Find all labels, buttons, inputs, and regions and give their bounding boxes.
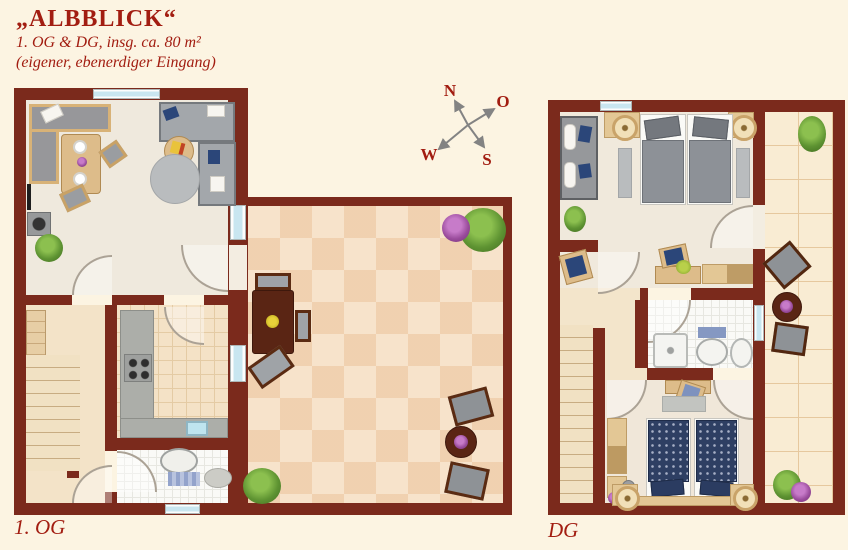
- corner-bench: [29, 104, 111, 132]
- pillow: [699, 480, 733, 498]
- table-flowers: [780, 300, 793, 313]
- washbasin: [160, 448, 198, 474]
- wardrobe-contents: [578, 163, 592, 179]
- bed-cover: [642, 140, 684, 203]
- staircase: [560, 325, 593, 503]
- pillow: [692, 116, 729, 140]
- living-terrace-window: [230, 205, 246, 240]
- wc-window: [165, 504, 200, 514]
- lamp: [731, 115, 757, 141]
- sideboard: [702, 264, 753, 284]
- lamp: [733, 486, 758, 511]
- wall: [691, 288, 753, 300]
- page-note: (eigener, ebenerdiger Eingang): [16, 54, 216, 72]
- toilet: [730, 338, 753, 368]
- bath-mat: [698, 327, 726, 338]
- rug: [662, 396, 706, 412]
- bedside-rug: [736, 148, 750, 198]
- table-flowers: [454, 435, 468, 449]
- wall: [14, 88, 26, 515]
- bed-cover: [648, 420, 689, 482]
- table-flowers: [266, 315, 279, 328]
- wall: [640, 288, 648, 300]
- radiator: [27, 184, 31, 210]
- wall: [503, 197, 512, 503]
- desk-plant: [676, 260, 691, 274]
- table-flowers: [77, 157, 87, 167]
- terrace-chair: [295, 310, 311, 342]
- page-subtitle: 1. OG & DG, insg. ca. 80 m²: [16, 34, 201, 52]
- wardrobe-contents: [564, 162, 576, 188]
- pillow: [650, 479, 684, 498]
- flowering-plant: [442, 214, 470, 242]
- bathroom-window: [754, 305, 764, 341]
- wall: [833, 100, 845, 515]
- terrace-chair: [255, 273, 291, 290]
- terrace-door-opening: [229, 245, 247, 290]
- lamp: [615, 486, 640, 511]
- cooktop: [124, 354, 152, 382]
- round-rug: [150, 154, 200, 204]
- flowering-plant: [791, 482, 811, 502]
- living-room-window: [93, 89, 160, 99]
- dg-label: DG: [548, 518, 578, 543]
- sofa-pillow: [208, 150, 220, 164]
- plant: [564, 206, 586, 232]
- og-label: 1. OG: [14, 515, 65, 540]
- floorplan-og: [14, 88, 512, 515]
- wood-stove: [27, 212, 51, 236]
- wall: [548, 100, 845, 112]
- bed-cover: [696, 420, 737, 482]
- washbasin: [696, 338, 728, 366]
- wall: [635, 300, 648, 368]
- terrace-door-opening: [753, 205, 765, 249]
- wall: [14, 503, 512, 515]
- bath-mat: [168, 472, 200, 486]
- wall: [248, 197, 512, 206]
- floorplan-page: „ALBBLICK“ 1. OG & DG, insg. ca. 80 m² (…: [0, 0, 848, 550]
- bedroom1-window: [600, 101, 632, 111]
- wall: [204, 295, 228, 305]
- bed-cover: [689, 140, 731, 203]
- shelf: [26, 310, 46, 356]
- wall: [105, 305, 117, 451]
- wall: [26, 295, 72, 305]
- kitchen-window: [230, 345, 246, 382]
- terrace-chair: [771, 322, 809, 356]
- plate: [73, 140, 87, 154]
- wardrobe-contents: [564, 124, 576, 150]
- toilet: [204, 468, 232, 488]
- page-title: „ALBBLICK“: [16, 6, 177, 33]
- bedside-rug: [618, 148, 632, 198]
- plant: [35, 234, 63, 262]
- floorplan-dg: [548, 100, 845, 515]
- wall: [548, 100, 560, 515]
- sofa-pillow: [210, 176, 225, 192]
- lamp: [612, 115, 638, 141]
- sofa-pillow: [207, 105, 225, 117]
- wall: [593, 328, 605, 503]
- plant: [243, 468, 281, 504]
- staircase: [26, 355, 80, 471]
- kitchen-sink: [186, 421, 208, 436]
- plant: [798, 116, 826, 152]
- wall: [647, 368, 713, 380]
- wall: [112, 295, 164, 305]
- kitchen-counter: [120, 418, 228, 438]
- wall: [753, 100, 765, 503]
- shower: [653, 333, 688, 368]
- wardrobe: [607, 418, 627, 474]
